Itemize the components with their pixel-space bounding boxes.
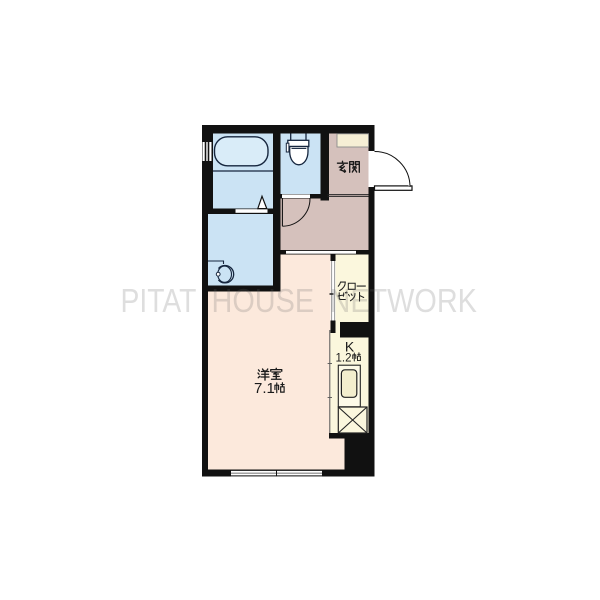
svg-text:NETWORK: NETWORK <box>330 282 478 319</box>
svg-text:7.1: 7.1 <box>254 380 275 397</box>
svg-text:1.2: 1.2 <box>336 353 352 365</box>
svg-text:PITAT: PITAT <box>121 282 197 320</box>
svg-text:HOUSE: HOUSE <box>212 282 315 319</box>
